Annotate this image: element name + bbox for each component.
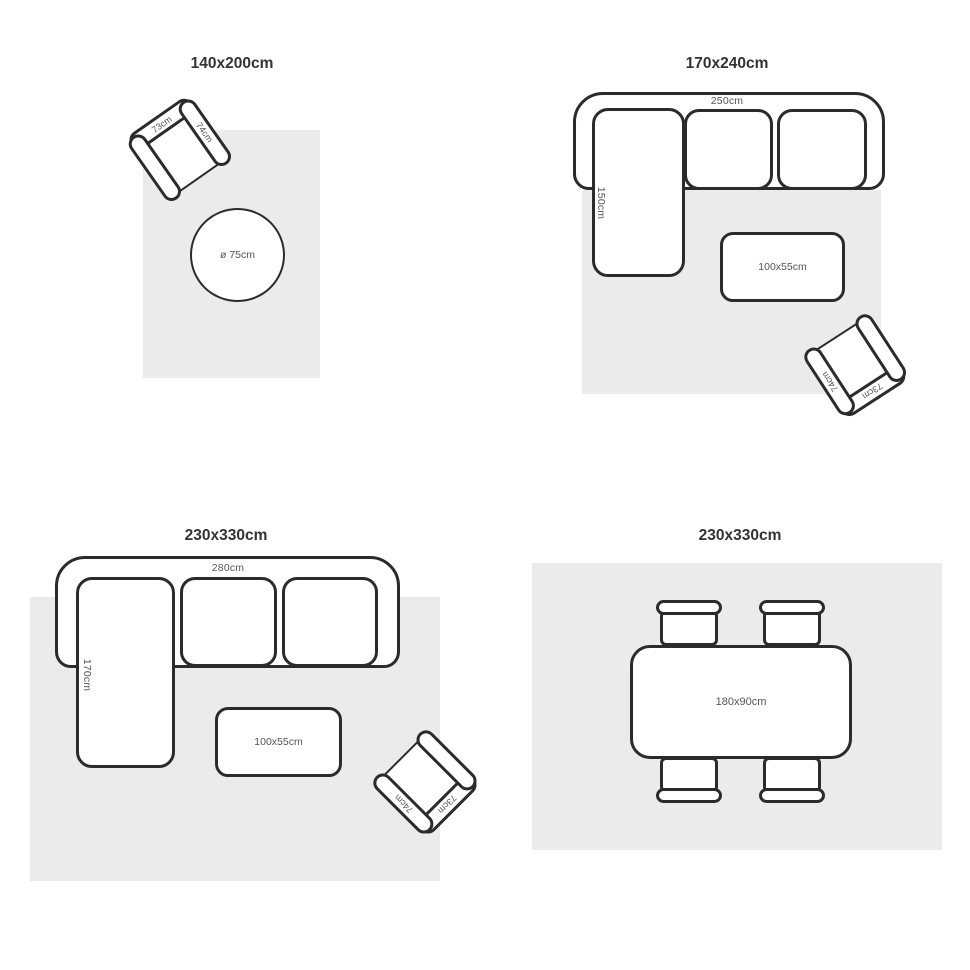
panel-230x330-dining: 230x330cm 180x90cm	[485, 485, 970, 970]
sofa-depth-label: 170cm	[81, 659, 93, 692]
round-table: ø 75cm	[190, 208, 285, 302]
panel-230x330-sofa: 230x330cm 280cm 170cm 100x55cm 73cm 74cm	[0, 485, 485, 970]
dining-chair-backrest	[759, 600, 825, 615]
sofa-cushion	[282, 577, 378, 667]
sofa-cushion	[180, 577, 277, 667]
rug-size-guide-diagram: 140x200cm ø 75cm 73cm 74cm 170x240cm 250…	[0, 0, 970, 970]
coffee-table-size-label: 100x55cm	[254, 736, 302, 748]
sofa-width-label: 280cm	[212, 562, 245, 574]
panel-140x200: 140x200cm ø 75cm 73cm 74cm	[0, 0, 485, 485]
sofa-depth-label: 150cm	[595, 187, 607, 220]
sofa-width-label: 250cm	[711, 95, 744, 107]
panel-title: 230x330cm	[699, 527, 782, 545]
armchair-width-label: 73cm	[861, 381, 885, 401]
sofa-cushion	[777, 109, 867, 190]
sofa-cushion	[684, 109, 773, 190]
coffee-table-size-label: 100x55cm	[758, 261, 806, 273]
dining-table-size-label: 180x90cm	[716, 696, 767, 708]
round-table-diameter-label: ø 75cm	[220, 249, 255, 261]
coffee-table: 100x55cm	[215, 707, 342, 777]
dining-chair-seat	[763, 610, 821, 646]
dining-chair-seat	[660, 610, 718, 646]
panel-170x240: 170x240cm 250cm 150cm 100x55cm 73cm 74cm	[485, 0, 970, 485]
dining-chair-backrest	[759, 788, 825, 803]
coffee-table: 100x55cm	[720, 232, 845, 302]
panel-title: 170x240cm	[686, 55, 769, 73]
dining-chair-backrest	[656, 600, 722, 615]
dining-chair-backrest	[656, 788, 722, 803]
dining-table: 180x90cm	[630, 645, 852, 759]
panel-title: 230x330cm	[185, 527, 268, 545]
panel-title: 140x200cm	[191, 55, 274, 73]
